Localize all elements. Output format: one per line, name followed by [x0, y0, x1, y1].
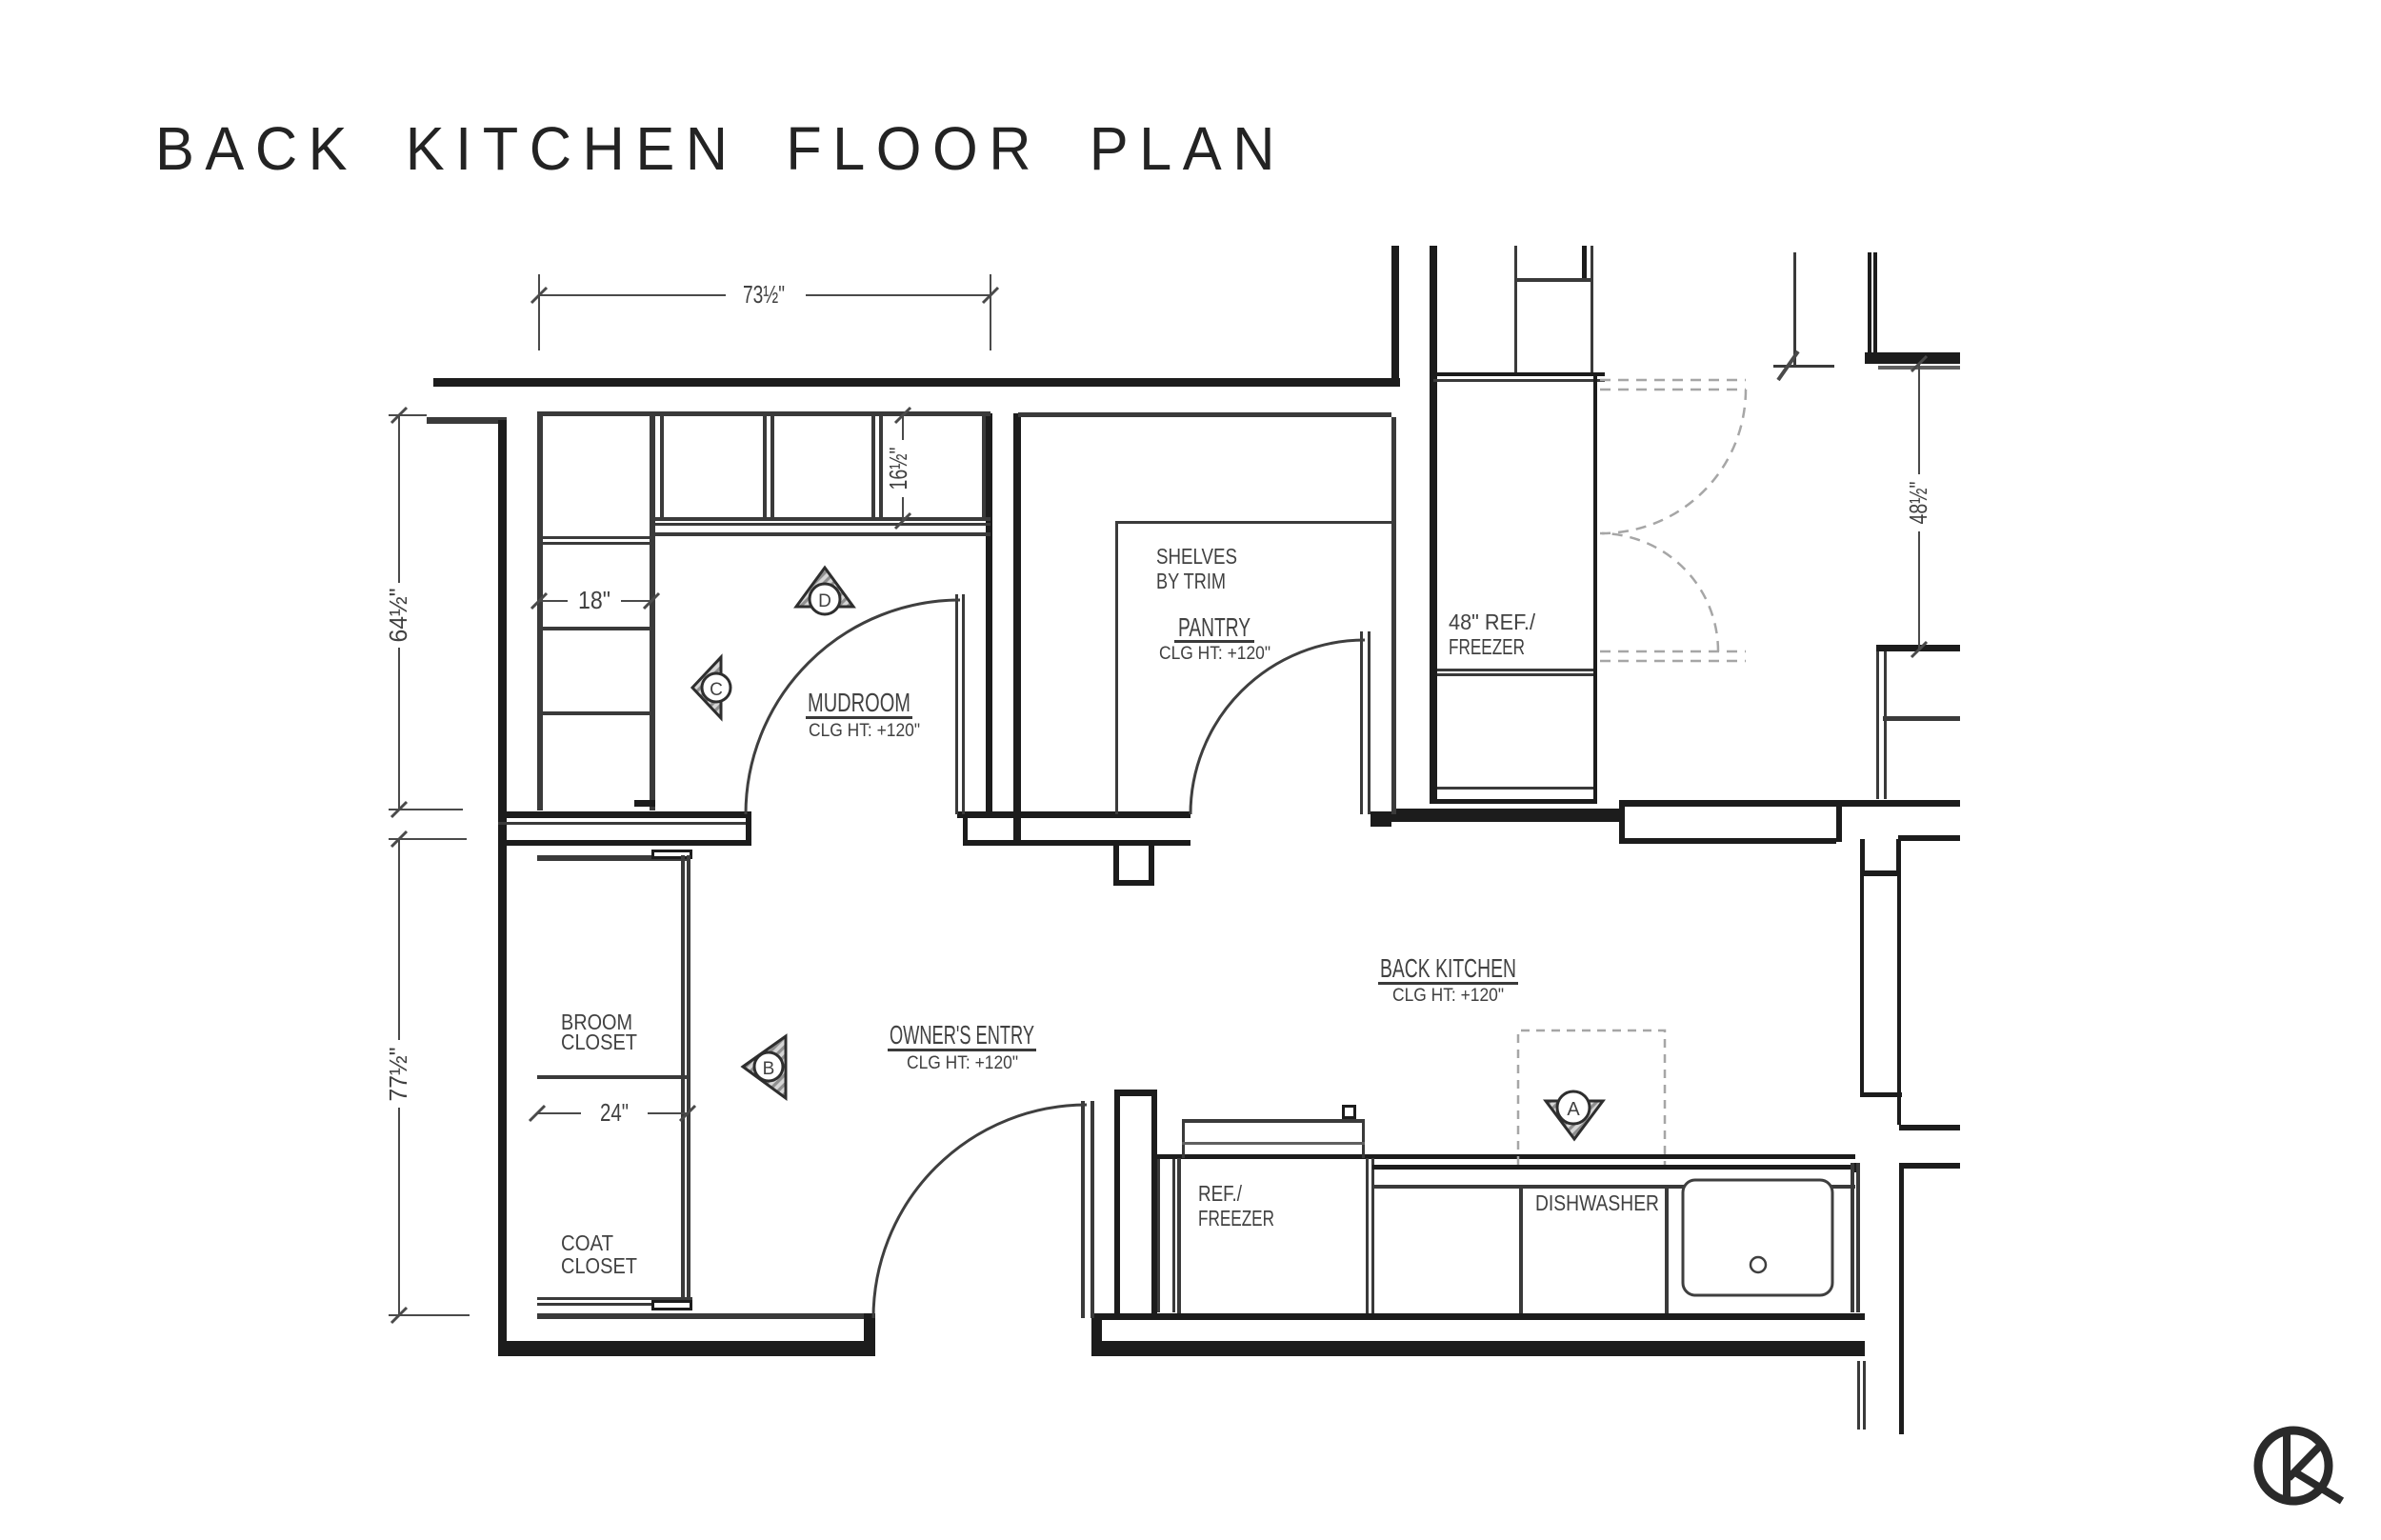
svg-text:COAT: COAT [561, 1230, 613, 1255]
svg-text:FREEZER: FREEZER [1198, 1206, 1274, 1230]
svg-text:D: D [818, 591, 831, 611]
svg-text:A: A [1567, 1099, 1580, 1120]
svg-text:REF./: REF./ [1198, 1181, 1242, 1206]
svg-text:BY TRIM: BY TRIM [1156, 569, 1226, 593]
svg-text:C: C [710, 680, 723, 700]
svg-text:CLG HT: +120": CLG HT: +120" [907, 1053, 1018, 1073]
svg-text:DISHWASHER: DISHWASHER [1535, 1190, 1659, 1215]
svg-text:BACK KITCHEN FLOOR PLAN: BACK KITCHEN FLOOR PLAN [155, 114, 1286, 183]
svg-text:MUDROOM: MUDROOM [808, 688, 910, 717]
svg-text:CLOSET: CLOSET [561, 1030, 637, 1054]
svg-text:18": 18" [578, 586, 610, 614]
svg-text:CLOSET: CLOSET [561, 1253, 637, 1278]
svg-text:48½": 48½" [1904, 482, 1932, 525]
svg-text:B: B [763, 1059, 775, 1079]
svg-text:CLG HT: +120": CLG HT: +120" [809, 721, 920, 741]
svg-text:77½": 77½" [384, 1048, 412, 1102]
svg-text:16½": 16½" [884, 448, 912, 490]
svg-text:BACK KITCHEN: BACK KITCHEN [1380, 953, 1516, 983]
svg-text:64½": 64½" [384, 589, 412, 643]
svg-text:SHELVES: SHELVES [1156, 544, 1237, 569]
svg-text:24": 24" [600, 1098, 629, 1127]
svg-text:PANTRY: PANTRY [1178, 612, 1251, 642]
svg-text:FREEZER: FREEZER [1449, 634, 1525, 659]
svg-text:CLG HT: +120": CLG HT: +120" [1392, 986, 1504, 1006]
svg-text:CLG HT: +120": CLG HT: +120" [1159, 644, 1271, 664]
svg-text:73½": 73½" [743, 280, 785, 309]
svg-text:OWNER'S ENTRY: OWNER'S ENTRY [890, 1020, 1034, 1050]
svg-text:48" REF./: 48" REF./ [1449, 610, 1536, 634]
